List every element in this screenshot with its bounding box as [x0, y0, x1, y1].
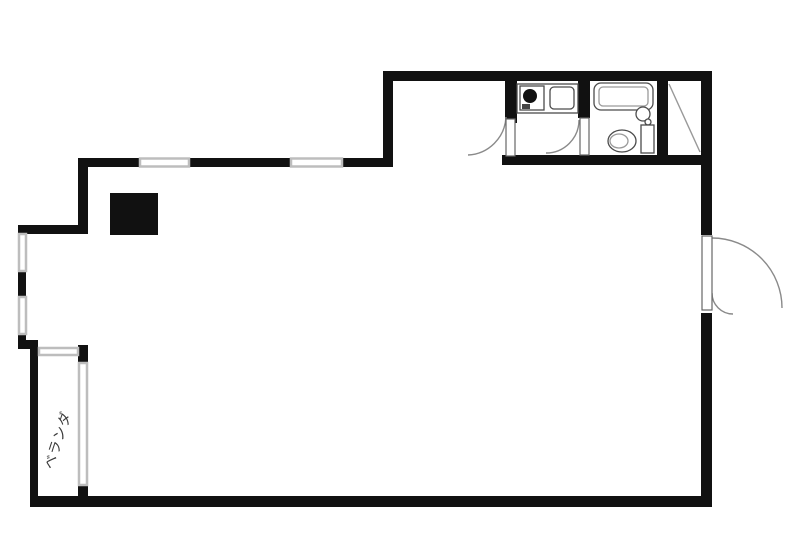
wall-north-b — [189, 158, 291, 167]
entrance-door-arc-main — [712, 238, 782, 308]
wall-west-jog — [18, 225, 88, 234]
window-north-2 — [291, 159, 342, 167]
veranda-sliding-window — [79, 363, 87, 485]
wall-top — [383, 71, 712, 81]
pillar-black-block — [110, 193, 158, 235]
kitchen-door-leaf — [506, 119, 515, 156]
wall-veranda-west — [30, 347, 38, 507]
stove-burner-icon — [523, 89, 537, 103]
toilet-tank — [641, 125, 654, 153]
entrance-door-arc-child — [712, 293, 733, 314]
window-west-1 — [19, 234, 26, 271]
wall-veranda-stub-top — [78, 345, 88, 363]
veranda-label: ベランダ — [42, 409, 76, 471]
wall-kitchen-bath-divider — [578, 81, 590, 118]
window-west-2 — [19, 297, 26, 334]
wall-veranda-stub-bottom — [78, 485, 88, 497]
floor-plan-canvas: ベランダ — [0, 0, 787, 533]
walls — [18, 71, 712, 507]
wall-kitchen-left-stub — [505, 81, 517, 123]
kitchen-fixtures — [517, 84, 578, 113]
kitchen-door-arc — [468, 117, 506, 155]
bathroom-door-arc — [546, 120, 579, 153]
toilet-seat — [610, 134, 628, 148]
bathtub-inner — [599, 87, 648, 106]
wall-nw-corner — [78, 158, 88, 234]
door-leaves — [506, 118, 712, 310]
wall-block-bottom — [502, 155, 712, 165]
wall-bath-closet-divider — [657, 81, 668, 155]
window-veranda-top — [39, 348, 78, 355]
wall-nook-west — [383, 71, 393, 167]
wall-right-lower — [701, 313, 712, 507]
entrance-door-leaf — [702, 236, 712, 310]
wall-west-mid — [18, 271, 26, 297]
closet-diagonal-mark — [669, 84, 700, 152]
wall-north-c — [342, 158, 390, 167]
shower-knob-icon — [645, 119, 651, 125]
floor-plan-page: ベランダ — [0, 0, 787, 533]
bathroom-door-leaf — [580, 118, 589, 155]
kitchen-sink — [550, 87, 574, 109]
bathroom-fixtures — [594, 83, 654, 153]
stove-grill — [522, 104, 530, 109]
window-north-1 — [140, 159, 189, 167]
wall-right-upper — [701, 71, 712, 235]
wall-bottom — [30, 496, 712, 507]
